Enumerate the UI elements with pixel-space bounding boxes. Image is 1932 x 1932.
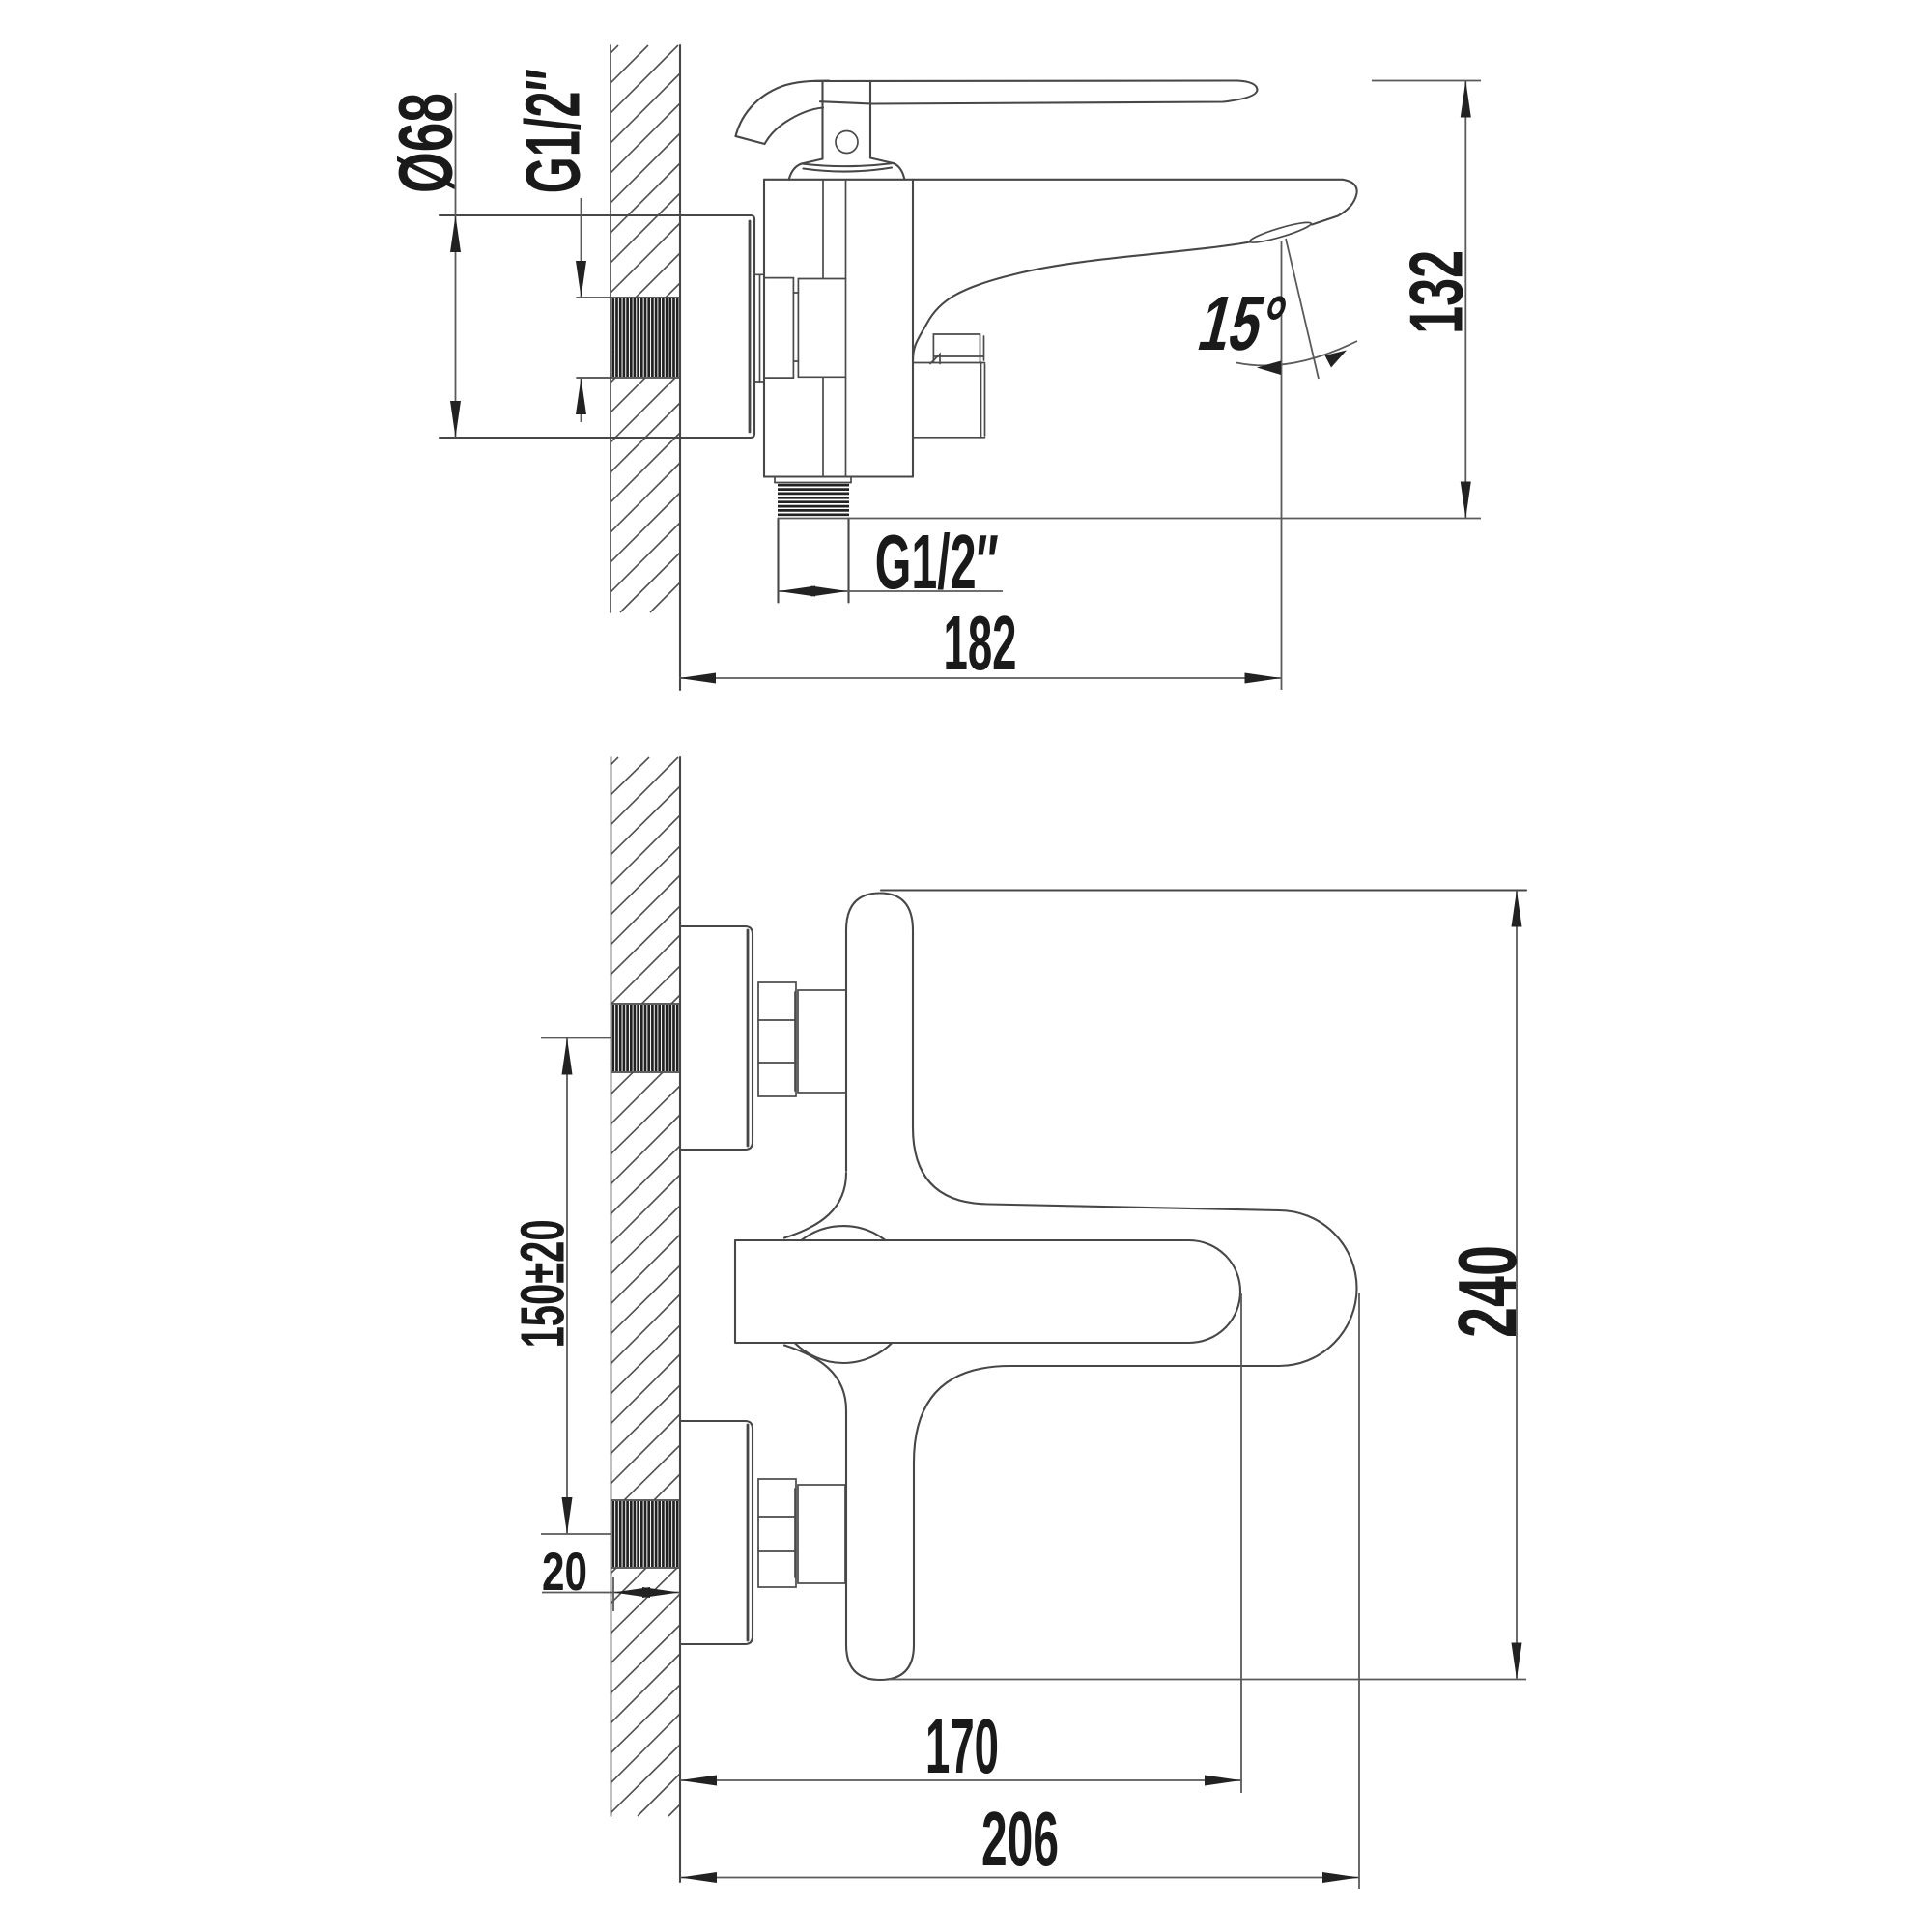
svg-text:182: 182: [944, 600, 1017, 686]
svg-text:G1/2″: G1/2″: [509, 69, 595, 193]
svg-text:G1/2″: G1/2″: [875, 519, 999, 605]
svg-text:240: 240: [1442, 1245, 1534, 1338]
svg-text:170: 170: [925, 1703, 999, 1789]
svg-text:20: 20: [542, 1541, 587, 1602]
svg-text:Ø68: Ø68: [383, 93, 469, 193]
svg-text:206: 206: [981, 1796, 1059, 1882]
svg-text:150±20: 150±20: [508, 1219, 578, 1348]
svg-text:132: 132: [1393, 250, 1478, 334]
